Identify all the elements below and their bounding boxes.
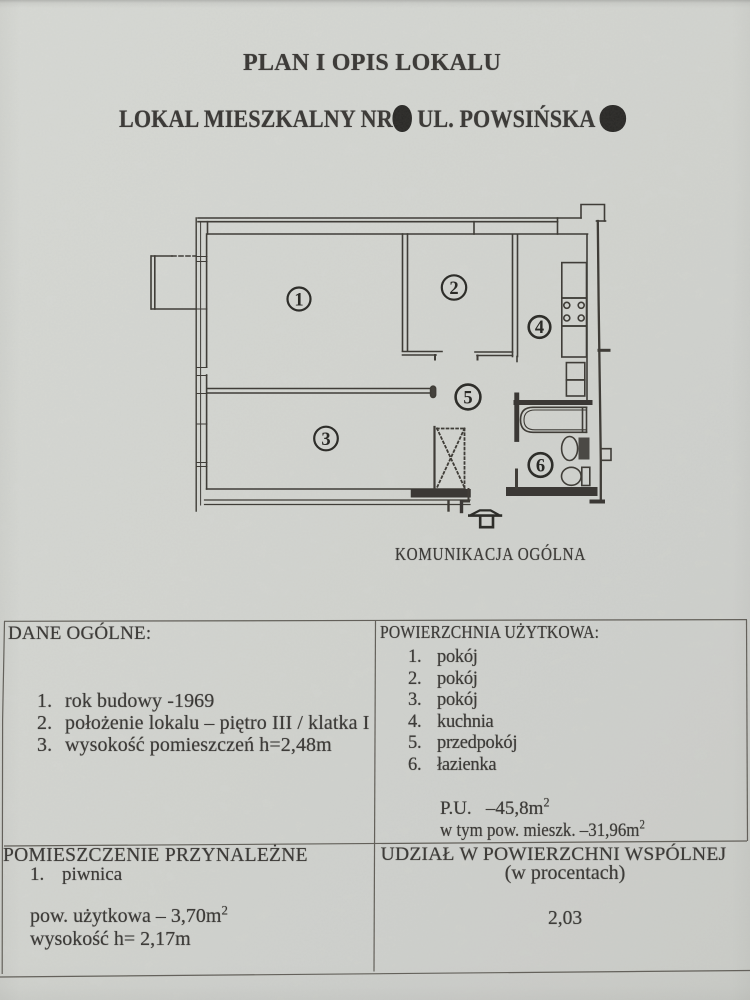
svg-text:5: 5: [463, 388, 472, 408]
svg-text:3: 3: [321, 430, 330, 450]
svg-text:2: 2: [449, 279, 458, 299]
svg-text:1: 1: [294, 290, 303, 310]
svg-text:6: 6: [536, 456, 545, 476]
svg-text:4: 4: [535, 318, 544, 338]
